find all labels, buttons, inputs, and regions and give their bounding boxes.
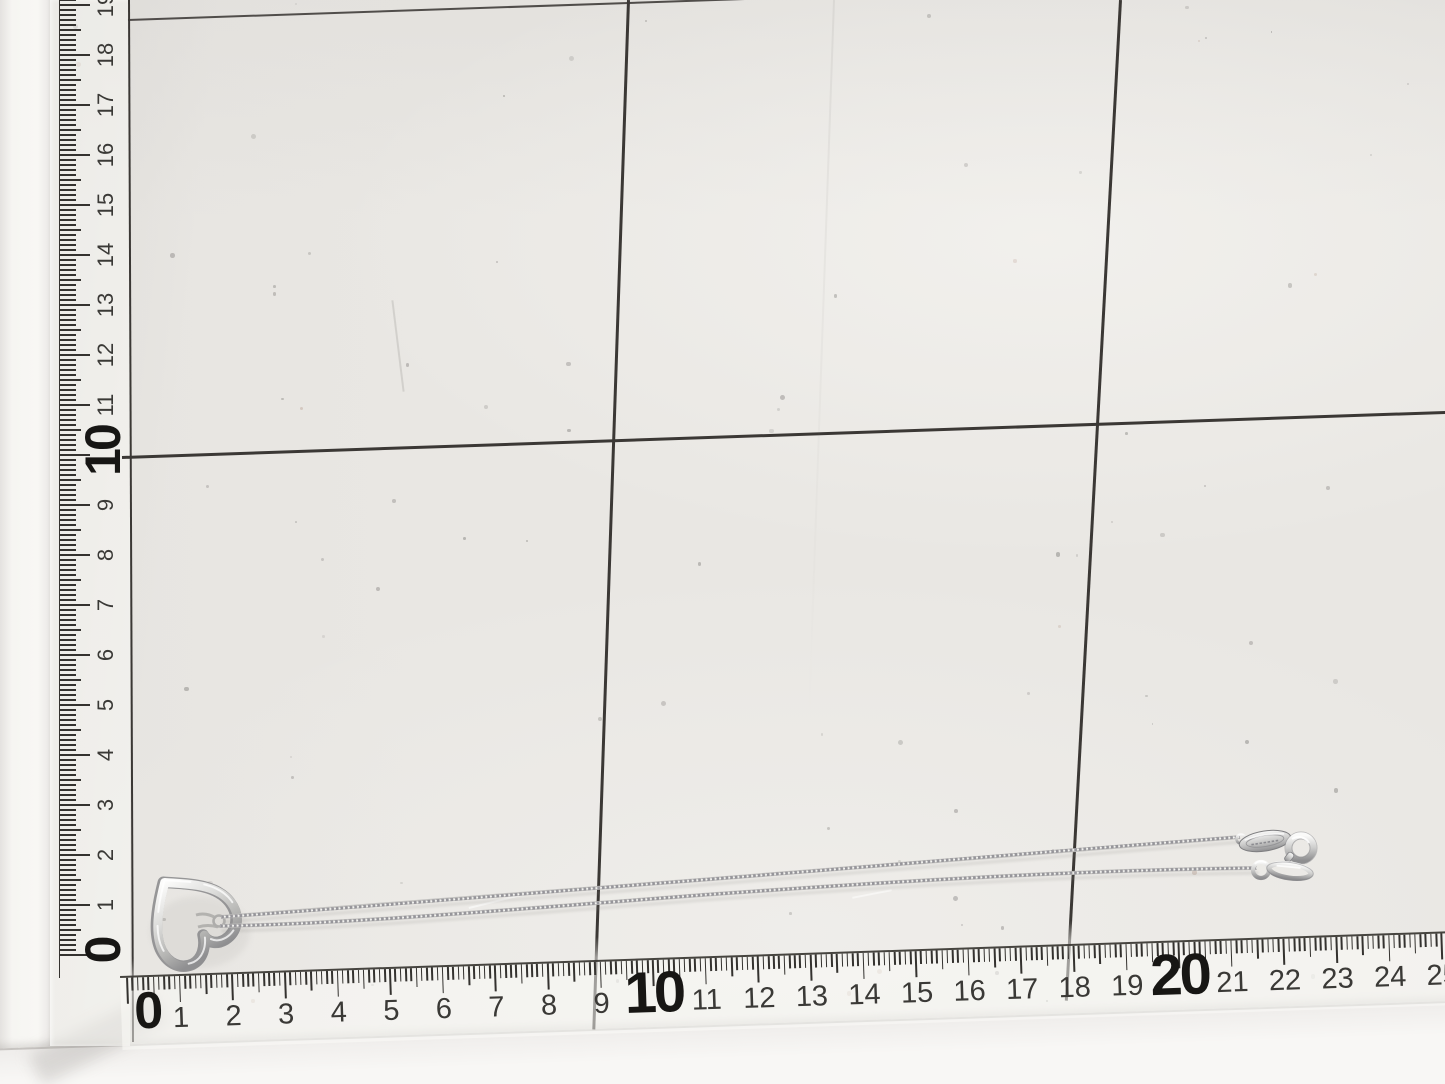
engraved-oval-tag [1238,827,1292,855]
photo-scene: 012345678910111213141516171819 012345678… [0,0,1445,1084]
chain-shadow-upper [223,842,1242,922]
necklace [0,0,1445,1084]
